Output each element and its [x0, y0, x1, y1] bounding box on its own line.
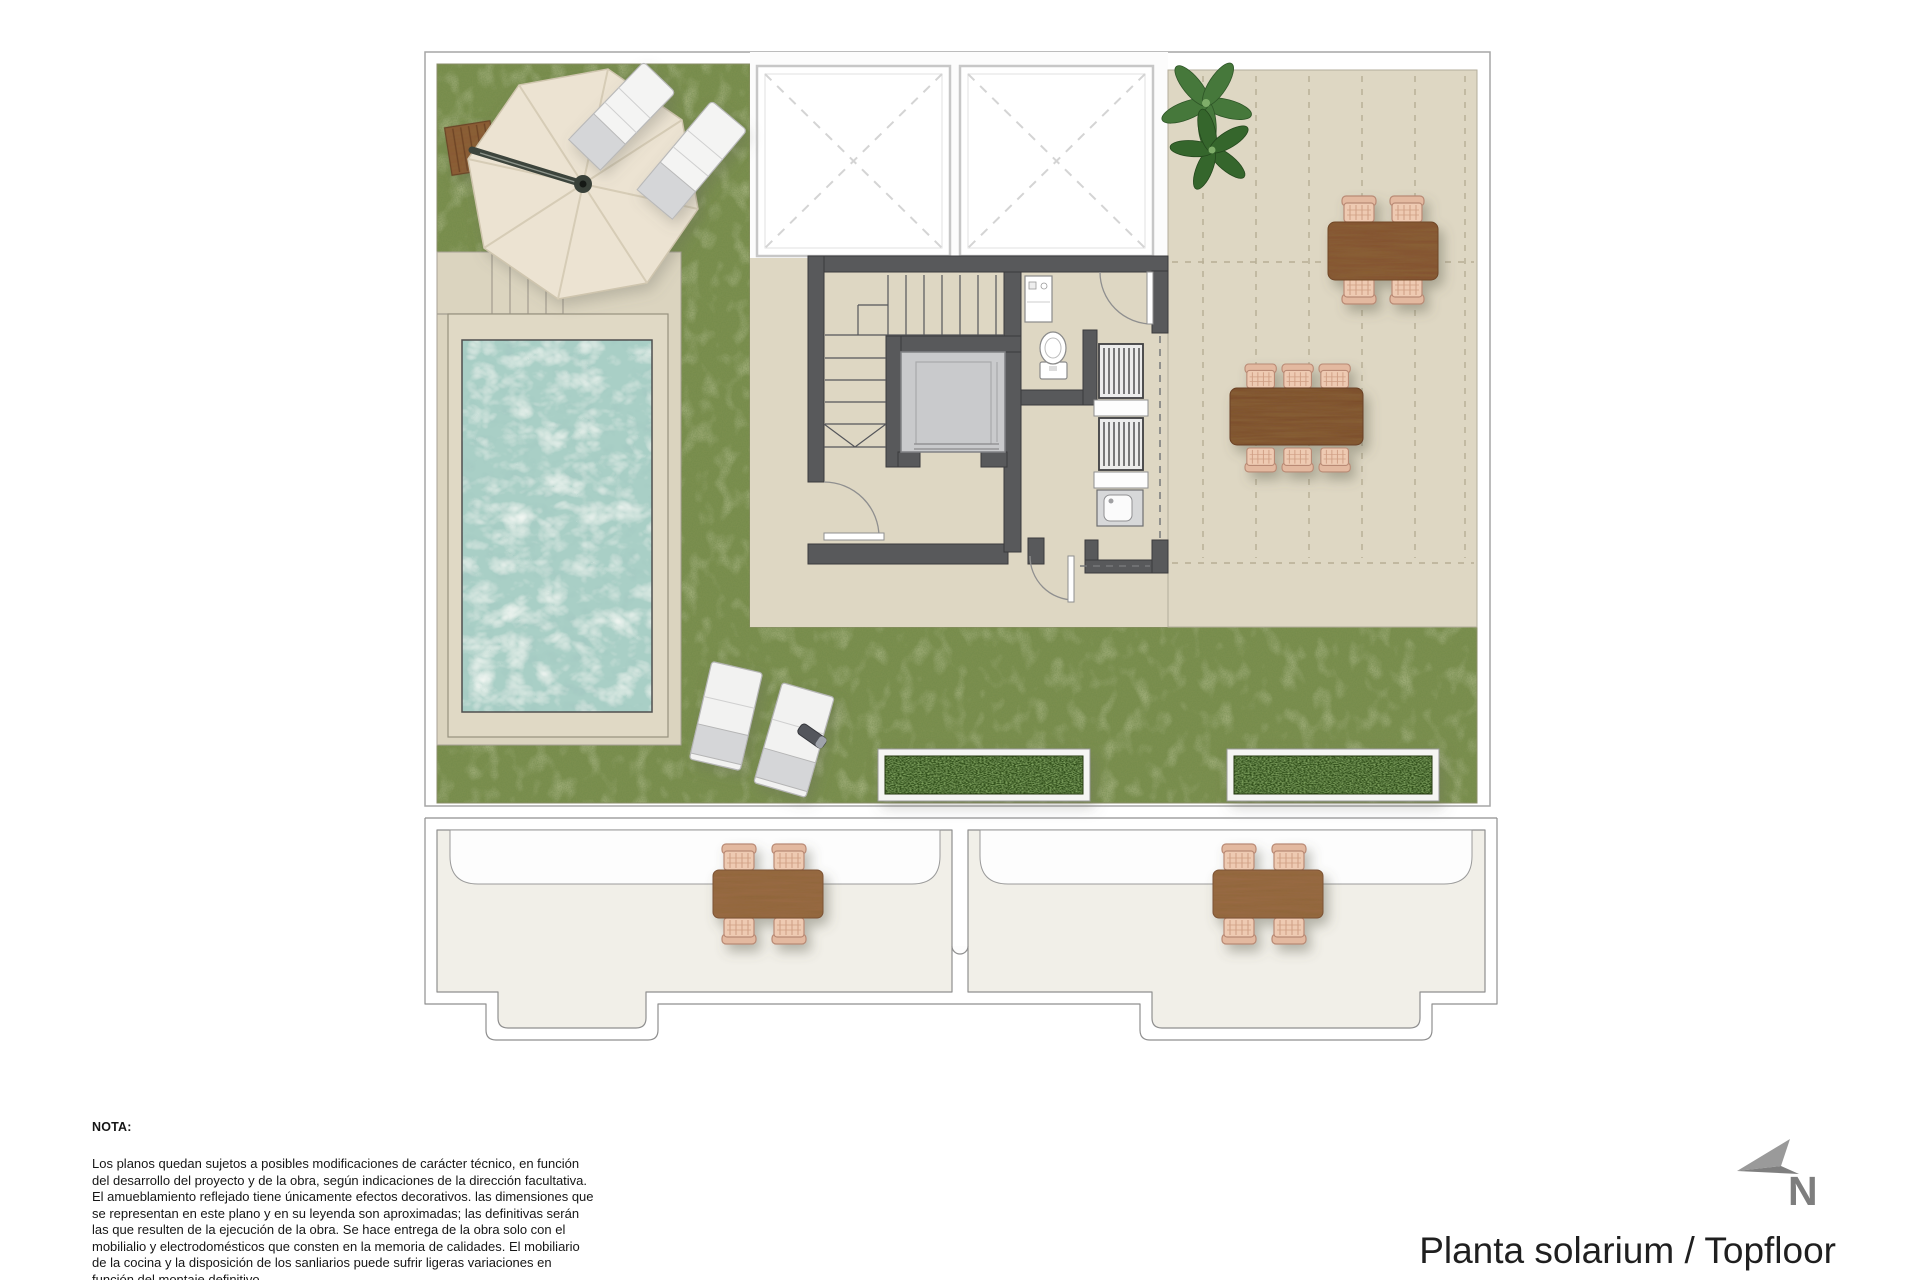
pool-deck [437, 252, 681, 745]
sink-icon [1097, 490, 1143, 526]
lower-room-recess [450, 830, 940, 884]
dining-table-6 [1230, 364, 1363, 472]
north-arrow-icon [1700, 1120, 1860, 1230]
skylight-panel [960, 66, 1153, 256]
elevator [901, 352, 1005, 452]
page: NOTA: Los planos quedan sujetos a posibl… [0, 0, 1920, 1280]
floor-plan [0, 0, 1920, 1280]
skylights [750, 52, 1168, 258]
lower-floor [425, 818, 1497, 1040]
note-body: Los planos quedan sujetos a posibles mod… [92, 1156, 597, 1280]
planter [878, 749, 1090, 801]
planter [1227, 749, 1439, 801]
skylight-panel [757, 66, 950, 256]
louvre-unit-icon [1099, 344, 1143, 398]
divider-detail [952, 946, 968, 954]
note-heading: NOTA: [92, 1120, 597, 1134]
page-title: Planta solarium / Topfloor [1419, 1230, 1836, 1272]
solarium-level [425, 52, 1490, 806]
louvre-unit-icon [1099, 418, 1143, 470]
note-block: NOTA: Los planos quedan sujetos a posibl… [92, 1120, 597, 1280]
swimming-pool [462, 340, 652, 712]
toilet-icon [1040, 332, 1067, 379]
north-compass: N [1700, 1120, 1860, 1230]
north-label: N [1788, 1168, 1818, 1215]
water-heater-icon [1025, 276, 1052, 322]
